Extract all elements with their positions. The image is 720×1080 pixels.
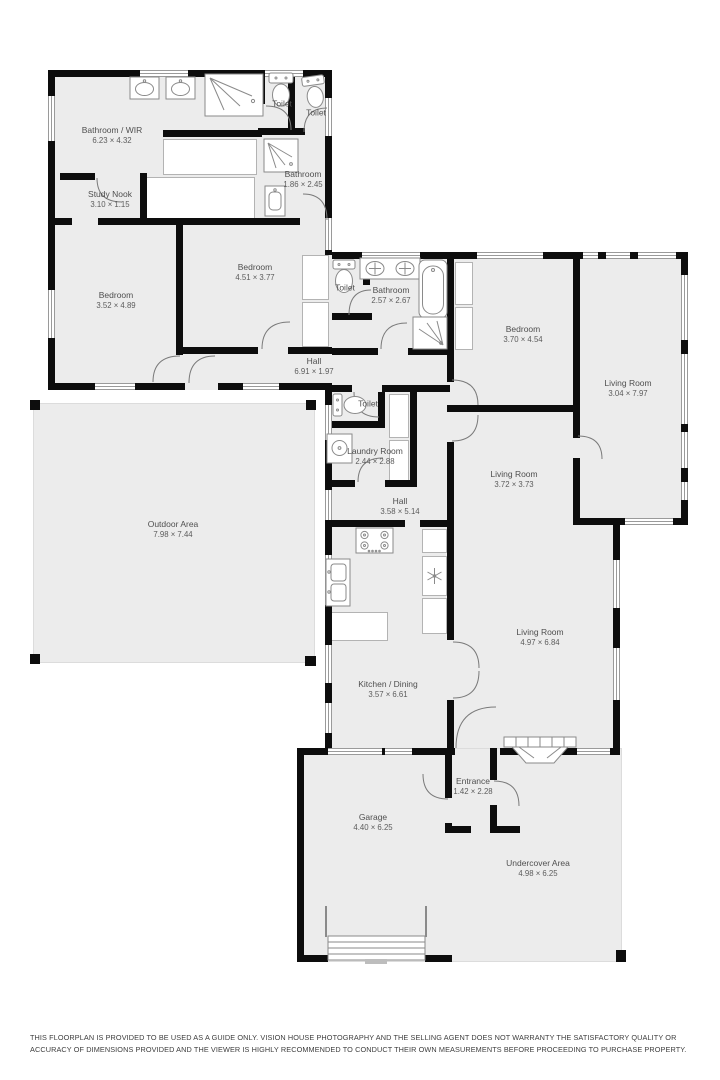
room-name: Hall <box>294 356 333 367</box>
room-label: Kitchen / Dining3.57 × 6.61 <box>358 679 418 701</box>
room-dimensions: 4.97 × 6.84 <box>516 638 563 649</box>
room-label: Bathroom2.57 × 2.67 <box>371 285 410 307</box>
room-dimensions: 7.98 × 7.44 <box>148 530 199 541</box>
bathtub-icon <box>419 260 447 318</box>
room-dimensions: 4.98 × 6.25 <box>506 869 570 880</box>
sink-icon <box>326 559 350 606</box>
room-name: Living Room <box>516 627 563 638</box>
room-label: Study Nook3.10 × 1.15 <box>88 189 132 211</box>
room-name: Living Room <box>604 378 651 389</box>
room-dimensions: 3.72 × 3.73 <box>490 480 537 491</box>
room-label: Living Room3.72 × 3.73 <box>490 469 537 491</box>
room-label: Hall3.58 × 5.14 <box>380 496 419 518</box>
room-label: Living Room4.97 × 6.84 <box>516 627 563 649</box>
shower-icon <box>264 139 298 172</box>
room-dimensions: 3.10 × 1.15 <box>88 200 132 211</box>
room-label: Living Room3.04 × 7.97 <box>604 378 651 400</box>
room-label: Bathroom / WIR6.23 × 4.32 <box>82 125 142 147</box>
room-label: Hall6.91 × 1.97 <box>294 356 333 378</box>
disclaimer-text: THIS FLOORPLAN IS PROVIDED TO BE USED AS… <box>30 1032 694 1057</box>
room-dimensions: 3.57 × 6.61 <box>358 690 418 701</box>
room-label: Bedroom4.51 × 3.77 <box>235 262 274 284</box>
room-dimensions: 1.42 × 2.28 <box>453 787 492 798</box>
toilet-icon <box>301 75 327 109</box>
shower-icon <box>205 74 263 116</box>
room-name: Toilet <box>306 107 326 118</box>
shower-icon <box>413 317 447 349</box>
room-name: Outdoor Area <box>148 519 199 530</box>
room-dimensions: 4.40 × 6.25 <box>353 823 392 834</box>
room-name: Bedroom <box>503 324 542 335</box>
room-name: Bedroom <box>235 262 274 273</box>
stove-icon <box>356 528 393 553</box>
room-name: Garage <box>353 812 392 823</box>
porch-steps <box>504 737 576 763</box>
room-dimensions: 1.86 × 2.45 <box>283 180 322 191</box>
room-label: Toilet <box>358 398 378 409</box>
room-name: Entrance <box>453 776 492 787</box>
room-dimensions: 3.04 × 7.97 <box>604 389 651 400</box>
room-dimensions: 6.91 × 1.97 <box>294 367 333 378</box>
basin-icon <box>130 77 195 99</box>
room-label: Toilet <box>272 98 292 109</box>
room-name: Toilet <box>358 398 378 409</box>
room-label: Toilet <box>306 107 326 118</box>
room-dimensions: 3.70 × 4.54 <box>503 335 542 346</box>
room-dimensions: 3.58 × 5.14 <box>380 507 419 518</box>
room-label: Garage4.40 × 6.25 <box>353 812 392 834</box>
room-name: Bathroom <box>283 169 322 180</box>
room-name: Toilet <box>335 282 355 293</box>
room-label: Undercover Area4.98 × 6.25 <box>506 858 570 880</box>
room-label: Entrance1.42 × 2.28 <box>453 776 492 798</box>
floor-plan: Bathroom / WIR6.23 × 4.32Study Nook3.10 … <box>0 0 720 1080</box>
basin-icon <box>265 186 285 216</box>
room-name: Study Nook <box>88 189 132 200</box>
room-label: Toilet <box>335 282 355 293</box>
room-name: Kitchen / Dining <box>358 679 418 690</box>
room-name: Bathroom / WIR <box>82 125 142 136</box>
room-name: Living Room <box>490 469 537 480</box>
room-name: Toilet <box>272 98 292 109</box>
room-dimensions: 6.23 × 4.32 <box>82 136 142 147</box>
room-dimensions: 2.44 × 2.88 <box>347 457 403 468</box>
room-name: Hall <box>380 496 419 507</box>
room-name: Bathroom <box>371 285 410 296</box>
room-dimensions: 2.57 × 2.67 <box>371 296 410 307</box>
fixtures-layer <box>0 0 720 1080</box>
basin-icon <box>360 258 420 279</box>
room-name: Laundry Room <box>347 446 403 457</box>
room-label: Outdoor Area7.98 × 7.44 <box>148 519 199 541</box>
room-name: Undercover Area <box>506 858 570 869</box>
fridge-icon <box>428 568 442 584</box>
room-name: Bedroom <box>96 290 135 301</box>
room-dimensions: 3.52 × 4.89 <box>96 301 135 312</box>
garage-door <box>325 906 427 964</box>
room-label: Bathroom1.86 × 2.45 <box>283 169 322 191</box>
room-dimensions: 4.51 × 3.77 <box>235 273 274 284</box>
room-label: Bedroom3.52 × 4.89 <box>96 290 135 312</box>
room-label: Laundry Room2.44 × 2.88 <box>347 446 403 468</box>
room-label: Bedroom3.70 × 4.54 <box>503 324 542 346</box>
